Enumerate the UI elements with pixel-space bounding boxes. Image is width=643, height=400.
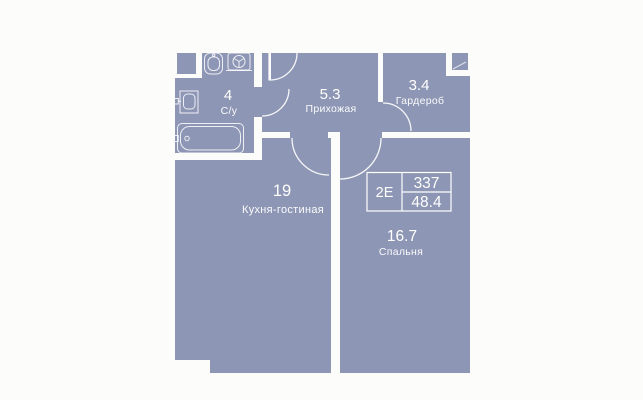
bedroom-name-label: Спальня (379, 246, 423, 258)
pillar-top-left (177, 53, 196, 74)
wall-hallway-wardrobe (378, 53, 383, 102)
wall-bedroom-top (382, 132, 470, 138)
kitchen-area-label: 19 (273, 182, 291, 200)
wardrobe-area-label: 3.4 (409, 77, 430, 94)
wardrobe-name-label: Гардероб (396, 95, 445, 107)
entry-door-leaf (268, 53, 271, 81)
bedroom-area-label: 16.7 (387, 228, 417, 245)
unit-number: 337 (414, 175, 440, 192)
pillar-top-right (452, 53, 468, 70)
wall-hallway-bottom-left (262, 132, 290, 138)
wall-partition-kitchen-bedroom (331, 132, 340, 373)
kitchen-name-label: Кухня-гостиная (242, 204, 324, 216)
hallway-area-label: 5.3 (320, 86, 341, 103)
bathroom-name-label: С/у (221, 105, 238, 117)
hallway-name-label: Прихожая (305, 103, 356, 115)
floor-plan-page: 4 С/у 5.3 Прихожая 3.4 Гардероб 19 Кухня… (0, 0, 643, 400)
bathroom-area-label: 4 (224, 87, 232, 104)
wall-bathroom-right-upper (254, 53, 262, 87)
floor-plan-svg: 4 С/у 5.3 Прихожая 3.4 Гардероб 19 Кухня… (0, 0, 643, 400)
unit-total-area: 48.4 (411, 194, 442, 211)
unit-layout-type: 2Е (376, 185, 394, 201)
wall-bathroom-bottom (175, 153, 262, 160)
